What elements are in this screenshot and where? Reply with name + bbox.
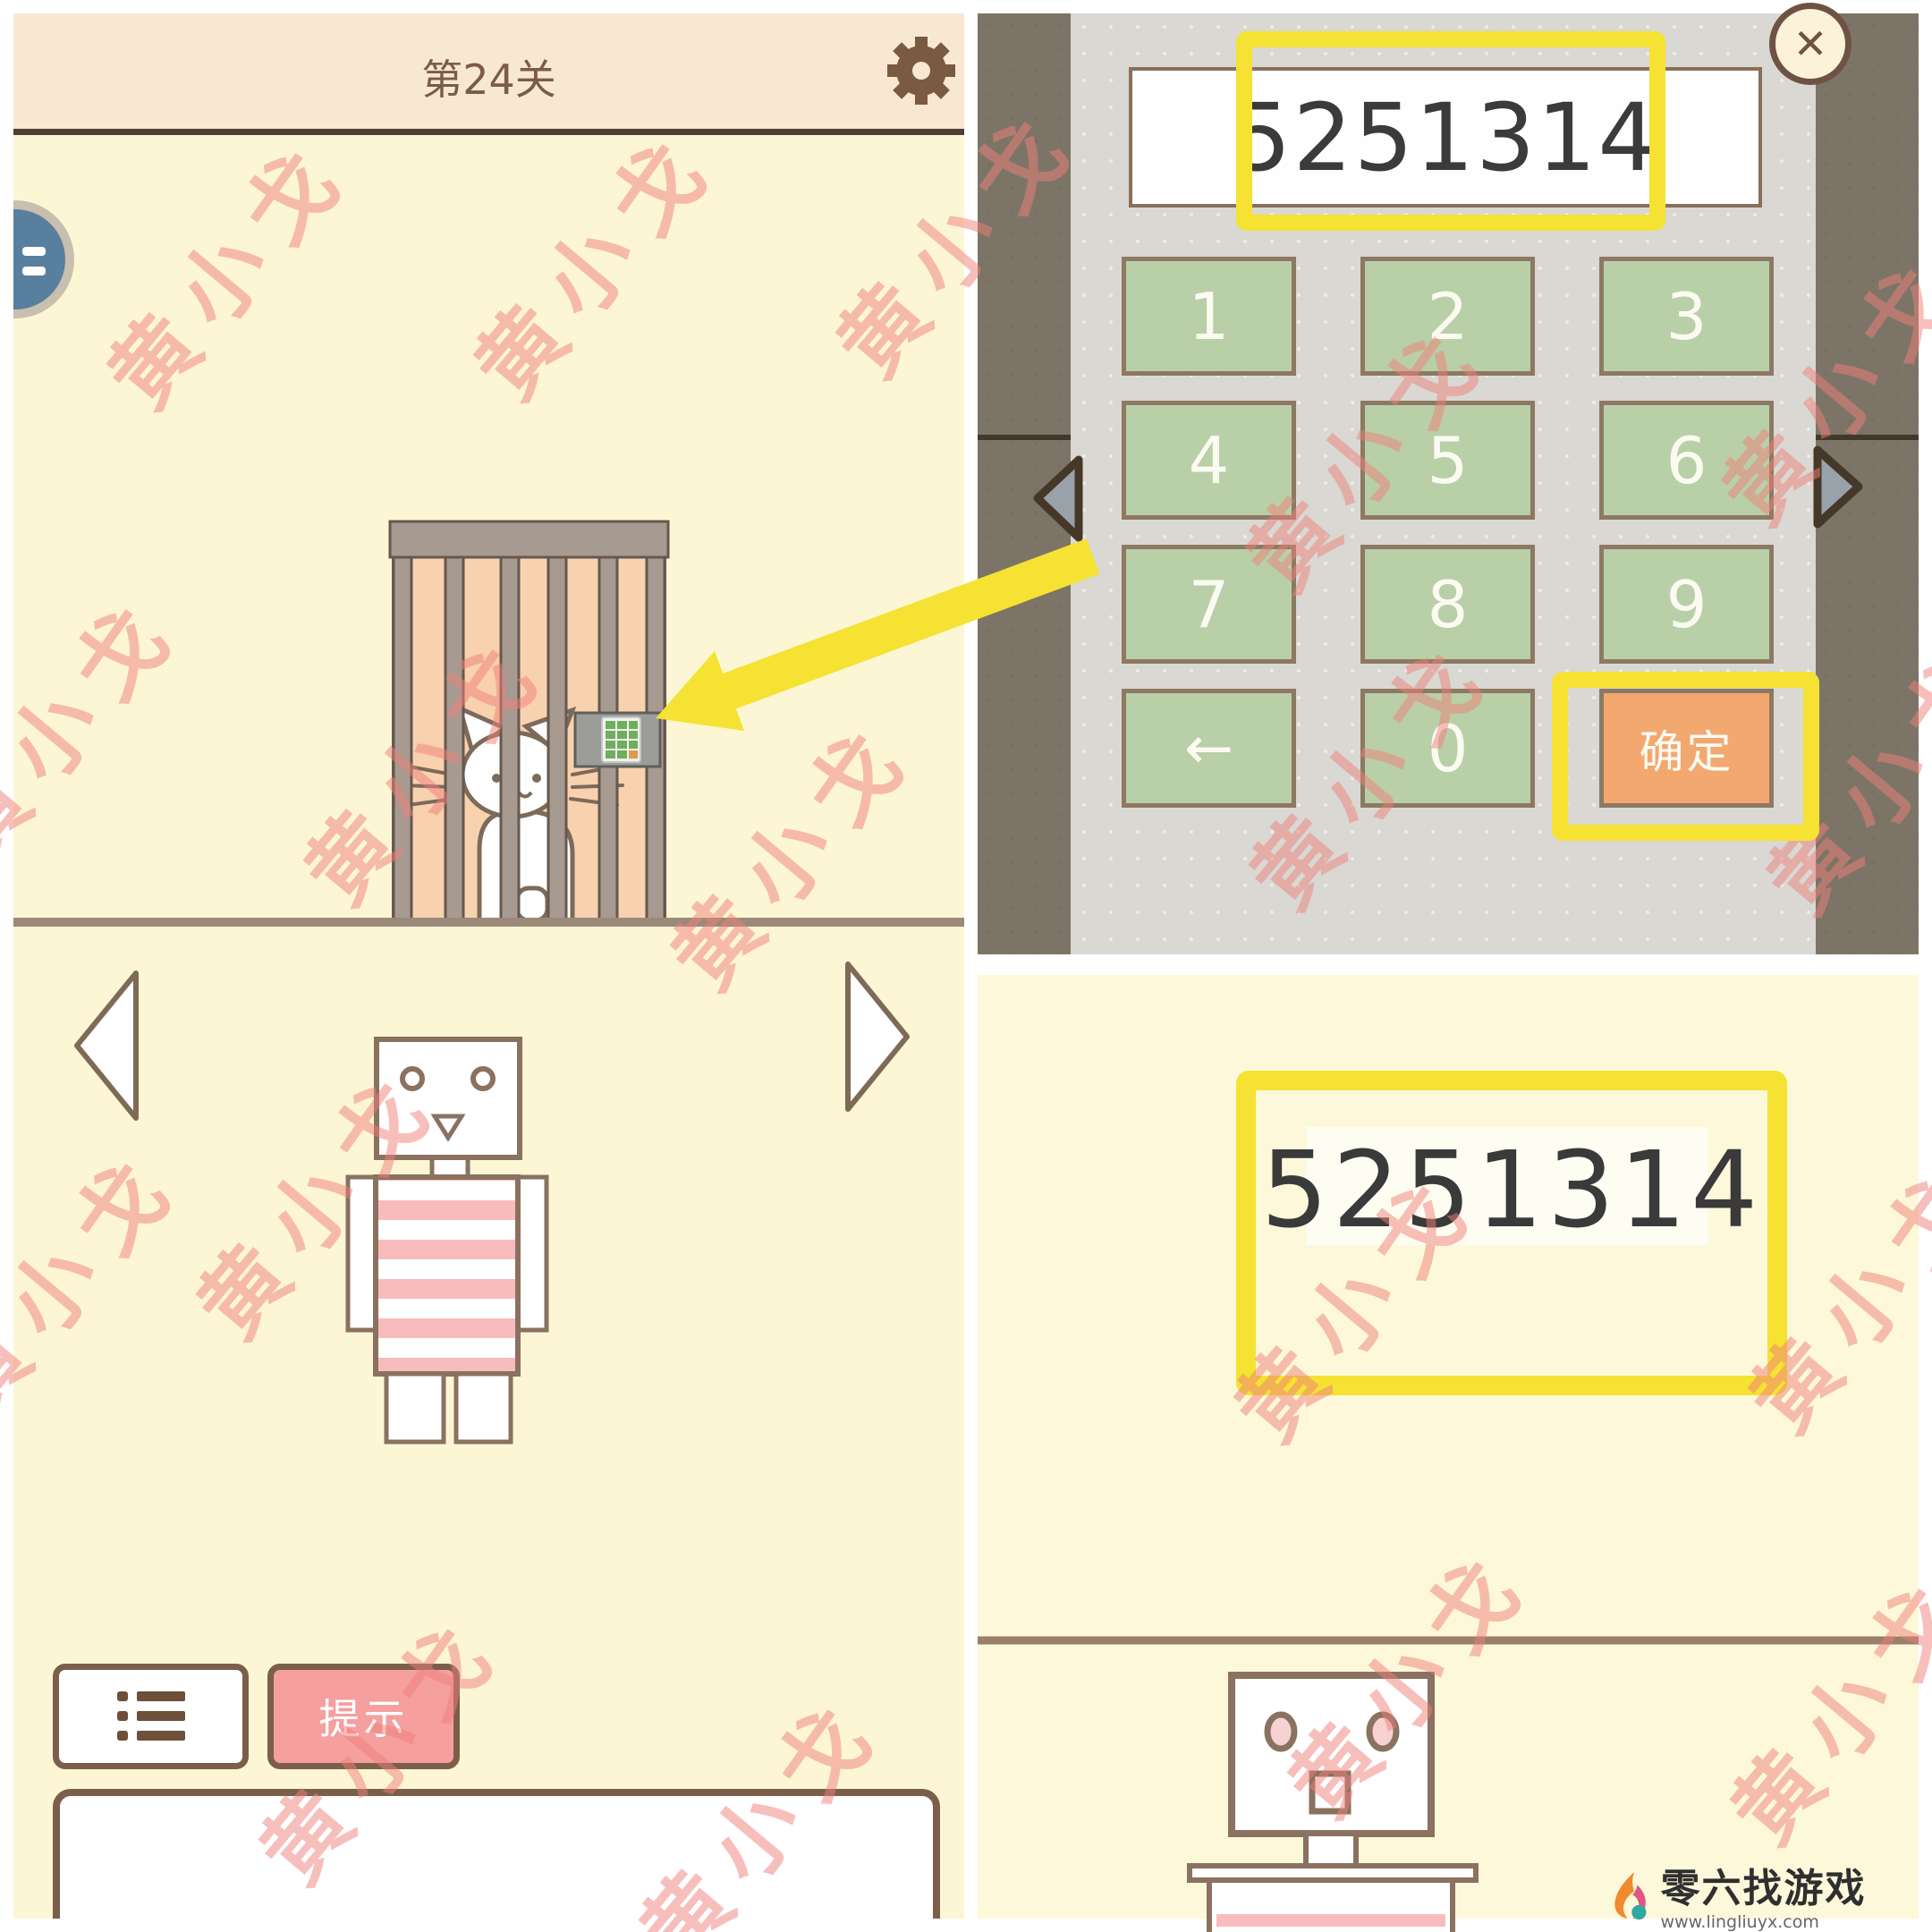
answer-code-panel: 5251314 [978, 975, 1919, 1919]
key-6[interactable]: 6 [1599, 401, 1774, 520]
key-1[interactable]: 1 [1122, 257, 1296, 376]
badge-glyph [22, 247, 46, 256]
game-screen-panel: 第24关 提示 [13, 13, 964, 1919]
answer-code-value: 5251314 [1261, 1128, 1763, 1251]
key-8[interactable]: 8 [1360, 545, 1535, 664]
level-list-button[interactable] [53, 1664, 249, 1769]
header-bar: 第24关 [13, 13, 964, 129]
key-确定[interactable]: 确定 [1599, 689, 1774, 808]
key-4[interactable]: 4 [1122, 401, 1296, 520]
keypad-dialog-panel: 5251314 123456789←0确定 ✕ [978, 13, 1919, 954]
logo-urls: www.lingliuyx.com www.06zyx.com [1661, 1912, 1932, 1932]
site-logo: 零六找游戏 www.lingliuyx.com www.06zyx.com [1610, 1868, 1932, 1932]
key-7[interactable]: 7 [1122, 545, 1296, 664]
code-input-field[interactable]: 5251314 [1129, 67, 1762, 208]
answer-input-area [53, 1789, 940, 1919]
close-icon[interactable]: ✕ [1769, 3, 1851, 85]
screenshot-collage: 第24关 提示 5251314 123456789←0确定 ✕ [0, 0, 1932, 1932]
key-5[interactable]: 5 [1360, 401, 1535, 520]
keypad-safe[interactable] [575, 713, 660, 767]
key-3[interactable]: 3 [1599, 257, 1774, 376]
logo-name: 零六找游戏 [1661, 1868, 1932, 1911]
flame-icon [1610, 1868, 1654, 1925]
key-←[interactable]: ← [1122, 689, 1296, 808]
level-title: 第24关 [13, 47, 964, 106]
key-0[interactable]: 0 [1360, 689, 1535, 808]
badge-button[interactable] [13, 200, 74, 318]
key-9[interactable]: 9 [1599, 545, 1774, 664]
header-divider [13, 129, 964, 135]
keypad-keys: 123456789←0确定 [1122, 257, 1774, 808]
hint-button[interactable]: 提示 [267, 1664, 460, 1769]
key-2[interactable]: 2 [1360, 257, 1535, 376]
code-input-value: 5251314 [1232, 83, 1658, 192]
list-icon [115, 1688, 187, 1745]
answer-code-box: 5251314 [1236, 1071, 1787, 1395]
